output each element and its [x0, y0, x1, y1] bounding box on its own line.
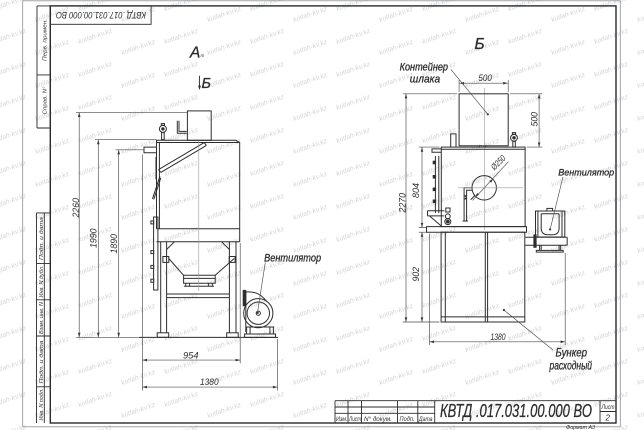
svg-text:Инв. N дубл.: Инв. N дубл. [39, 266, 45, 298]
svg-text:2260: 2260 [71, 197, 81, 218]
svg-text:Справ. N°: Справ. N° [42, 87, 48, 115]
svg-text:954: 954 [183, 350, 199, 360]
svg-text:Подп.: Подп. [400, 417, 415, 423]
svg-text:804: 804 [411, 183, 421, 198]
svg-text:расходный: расходный [549, 361, 593, 373]
svg-text:шлака: шлака [410, 73, 440, 85]
svg-text:2270: 2270 [398, 192, 408, 213]
svg-text:КВТД .017.031.00.000 ВО: КВТД .017.031.00.000 ВО [56, 9, 146, 20]
svg-text:Вентилятор: Вентилятор [264, 252, 321, 264]
svg-text:Бункер: Бункер [556, 348, 588, 360]
svg-text:500: 500 [478, 73, 492, 83]
svg-text:Формат А3: Формат А3 [566, 425, 596, 430]
svg-text:т: т [201, 53, 205, 58]
svg-text:Лист: Лист [601, 405, 615, 411]
svg-text:902: 902 [411, 266, 421, 281]
svg-text:Вентилятор: Вентилятор [558, 167, 615, 178]
svg-text:А: А [189, 45, 200, 62]
svg-text:Лист: Лист [348, 417, 361, 423]
svg-text:КВТД .017.031.00.000 ВО: КВТД .017.031.00.000 ВО [440, 400, 592, 421]
svg-text:Инв. N подл.: Инв. N подл. [39, 389, 45, 421]
svg-text:Перв. примен.: Перв. примен. [42, 19, 48, 61]
svg-text:Подп. и дата: Подп. и дата [39, 217, 45, 260]
svg-text:1990: 1990 [89, 228, 99, 248]
svg-text:Подп. и дата: Подп. и дата [39, 340, 45, 383]
svg-text:2: 2 [605, 414, 611, 423]
svg-text:Б: Б [475, 36, 485, 53]
svg-text:Дата: Дата [418, 417, 433, 423]
svg-text:1890: 1890 [109, 233, 119, 253]
svg-text:1380: 1380 [491, 332, 507, 342]
svg-text:Взам. инв. N: Взам. инв. N [39, 302, 45, 334]
svg-text:Контейнер: Контейнер [400, 62, 448, 74]
svg-text:Изм.: Изм. [336, 417, 348, 423]
svg-text:500: 500 [529, 111, 539, 126]
svg-text:N° докум.: N° докум. [364, 417, 392, 423]
svg-text:1380: 1380 [200, 377, 219, 387]
svg-text:Б: Б [202, 76, 211, 92]
